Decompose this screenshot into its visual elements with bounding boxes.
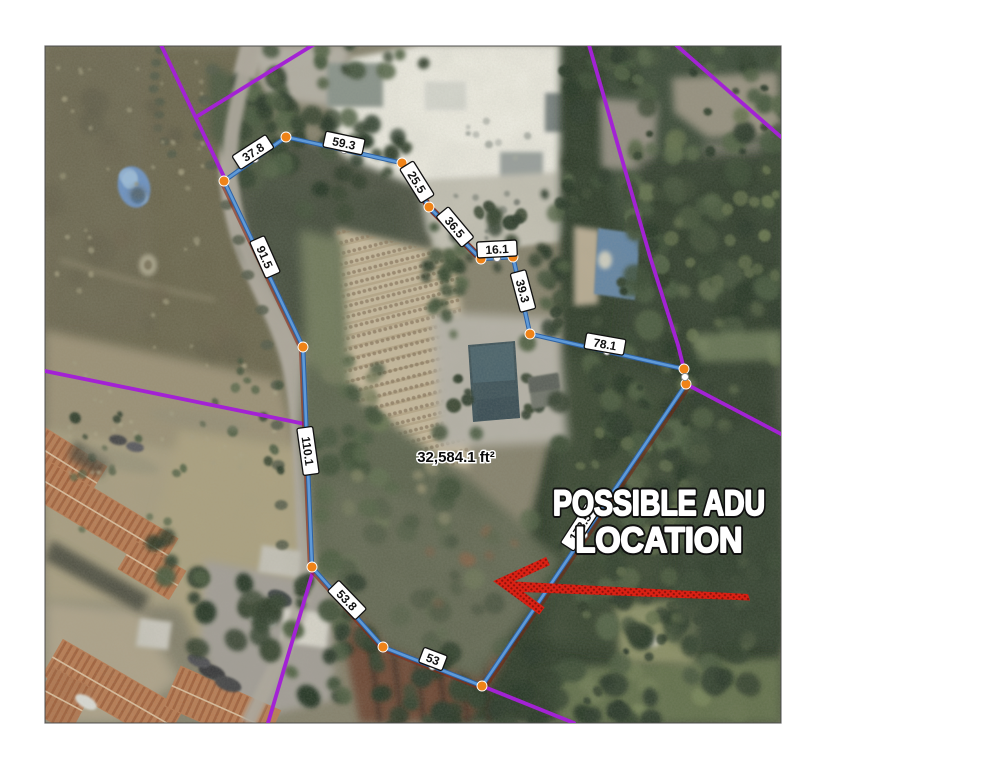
svg-text:32,584.1 ft²: 32,584.1 ft² [417,449,495,466]
svg-text:POSSIBLE ADU: POSSIBLE ADU [553,484,765,523]
svg-text:16.1: 16.1 [485,242,509,257]
svg-text:LOCATION: LOCATION [576,521,743,560]
